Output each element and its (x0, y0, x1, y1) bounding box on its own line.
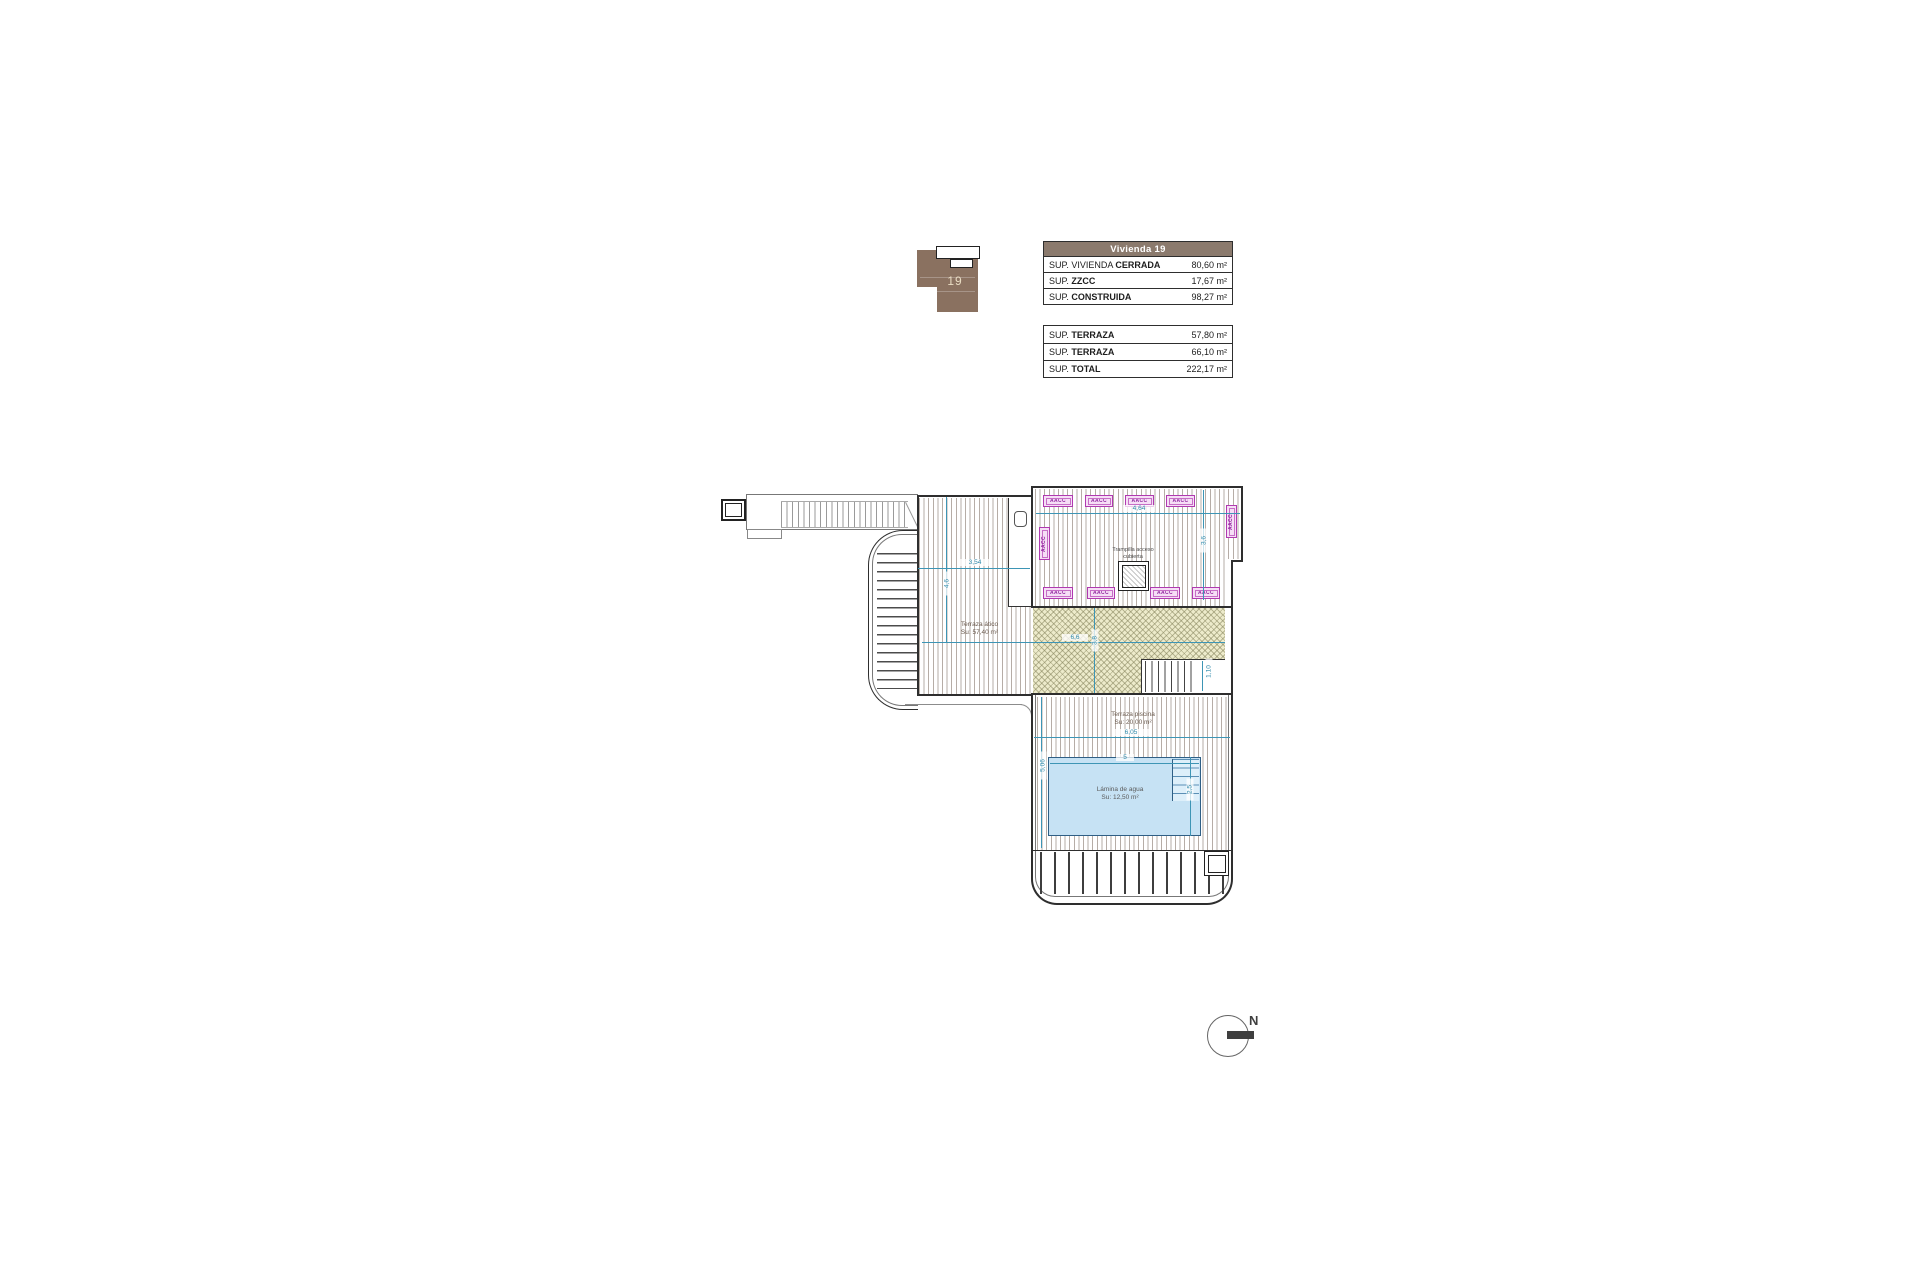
dimension-label: 3,8 (1092, 630, 1099, 652)
dimension-label: 2,5 (1187, 779, 1194, 801)
key-plan-block-left (917, 250, 937, 287)
wall-line-inner (905, 704, 1022, 705)
dimension-line (1050, 763, 1199, 764)
dimension-label: 5 (1116, 754, 1134, 761)
dimension-label: 1,10 (1206, 659, 1213, 685)
walkway-stair-treads (781, 501, 908, 528)
key-plan-unit-number: 19 (940, 274, 970, 288)
row-label-prefix: SUP. (1049, 347, 1071, 357)
wall-line (1232, 560, 1243, 562)
spa-box-inner (1208, 855, 1226, 873)
row-label-prefix: SUP. VIVIENDA (1049, 260, 1115, 270)
dimension-label: 4,6 (944, 572, 951, 596)
key-plan: 19 (900, 240, 1010, 330)
aacc-unit: AACC (1043, 587, 1073, 599)
pool-terrace-label: Terraza piscina Su: 20,00 m² (1078, 711, 1188, 726)
spa-box (1204, 851, 1229, 876)
row-label: CERRADA (1115, 260, 1160, 270)
aacc-unit: AACC (1085, 495, 1113, 507)
lift-shaft-inner (725, 503, 742, 517)
row-value: 98,27 m² (1191, 292, 1227, 302)
dimension-line (922, 642, 1225, 643)
atico-decking-upper (919, 498, 1008, 607)
wall-line (1031, 486, 1243, 488)
dimension-line (1036, 513, 1240, 514)
dimension-label: 6,05 (1112, 729, 1150, 736)
row-label: TOTAL (1071, 364, 1100, 374)
summary-table-header: Vivienda 19 (1044, 242, 1232, 256)
row-label-prefix: SUP. (1049, 276, 1071, 286)
wall-line (1241, 486, 1243, 562)
wall-line (917, 694, 1033, 696)
table-row: SUP. CONSTRUIDA 98,27 m² (1044, 288, 1232, 304)
wall-line (1031, 606, 1232, 608)
dimension-label: 3,54 (958, 559, 992, 566)
roof-hatch-inner (1122, 565, 1146, 588)
aacc-unit: AACC (1087, 587, 1115, 599)
louver-slats (877, 553, 917, 689)
pool-label: Lámina de agua Su: 12,50 m² (1078, 786, 1162, 801)
dimension-line (946, 497, 947, 643)
aacc-unit-vertical: AACC (1039, 527, 1050, 560)
row-label-prefix: SUP. (1049, 292, 1071, 302)
wall-line (1231, 560, 1233, 697)
compass: N (1207, 1015, 1267, 1060)
aacc-unit: AACC (1166, 495, 1195, 507)
row-value: 57,80 m² (1191, 330, 1227, 340)
wall-line (918, 495, 1032, 497)
table-row: SUP. TOTAL 222,17 m² (1044, 360, 1232, 377)
aacc-unit: AACC (1043, 495, 1073, 507)
wall-line (917, 495, 919, 695)
dimension-label: 5,06 (1040, 752, 1047, 780)
dimension-line (1034, 737, 1230, 738)
row-label: TERRAZA (1071, 330, 1114, 340)
wall-line (1031, 486, 1033, 608)
walkway-step (747, 529, 782, 539)
row-value: 17,67 m² (1191, 276, 1227, 286)
key-plan-highlight-rect (936, 246, 980, 259)
dimension-label: 3,6 (1201, 529, 1208, 553)
dimension-line (918, 568, 1030, 569)
table-row: SUP. TERRAZA 57,80 m² (1044, 326, 1232, 343)
architectural-plan-page: 19 Vivienda 19 SUP. VIVIENDA CERRADA 80,… (0, 0, 1920, 1280)
pergola-slats (1040, 852, 1226, 894)
key-plan-floor-line (920, 291, 975, 292)
pool-steps (1172, 759, 1199, 801)
table-row: SUP. TERRAZA 66,10 m² (1044, 343, 1232, 360)
row-label: ZZCC (1071, 276, 1095, 286)
row-label: CONSTRUIDA (1071, 292, 1131, 302)
row-value: 80,60 m² (1191, 260, 1227, 270)
stair-treads (1145, 661, 1193, 692)
north-arrow-bar (1227, 1031, 1254, 1039)
dimension-label: 4,64 (1123, 505, 1155, 512)
key-plan-highlight-rect-small (950, 259, 973, 268)
north-label: N (1249, 1013, 1258, 1028)
summary-table: Vivienda 19 SUP. VIVIENDA CERRADA 80,60 … (1043, 241, 1233, 305)
lift-shaft (721, 499, 746, 521)
aacc-unit-vertical: AACC (1226, 505, 1237, 538)
drain-icon (1014, 511, 1027, 527)
table-row: SUP. ZZCC 17,67 m² (1044, 272, 1232, 288)
row-value: 222,17 m² (1186, 364, 1227, 374)
row-value: 66,10 m² (1191, 347, 1227, 357)
dimension-line (1202, 661, 1203, 691)
row-label-prefix: SUP. (1049, 364, 1071, 374)
row-label-prefix: SUP. (1049, 330, 1071, 340)
table-row: SUP. VIVIENDA CERRADA 80,60 m² (1044, 256, 1232, 272)
row-label: TERRAZA (1071, 347, 1114, 357)
terrace-table: SUP. TERRAZA 57,80 m² SUP. TERRAZA 66,10… (1043, 325, 1233, 378)
aacc-unit: AACC (1192, 587, 1220, 599)
roof-hatch-label: Trampilla acceso cubierta (1103, 547, 1163, 560)
roof-hatch-box (1118, 561, 1149, 591)
aacc-unit: AACC (1150, 587, 1180, 599)
dimension-label: 6,6 (1062, 634, 1088, 641)
